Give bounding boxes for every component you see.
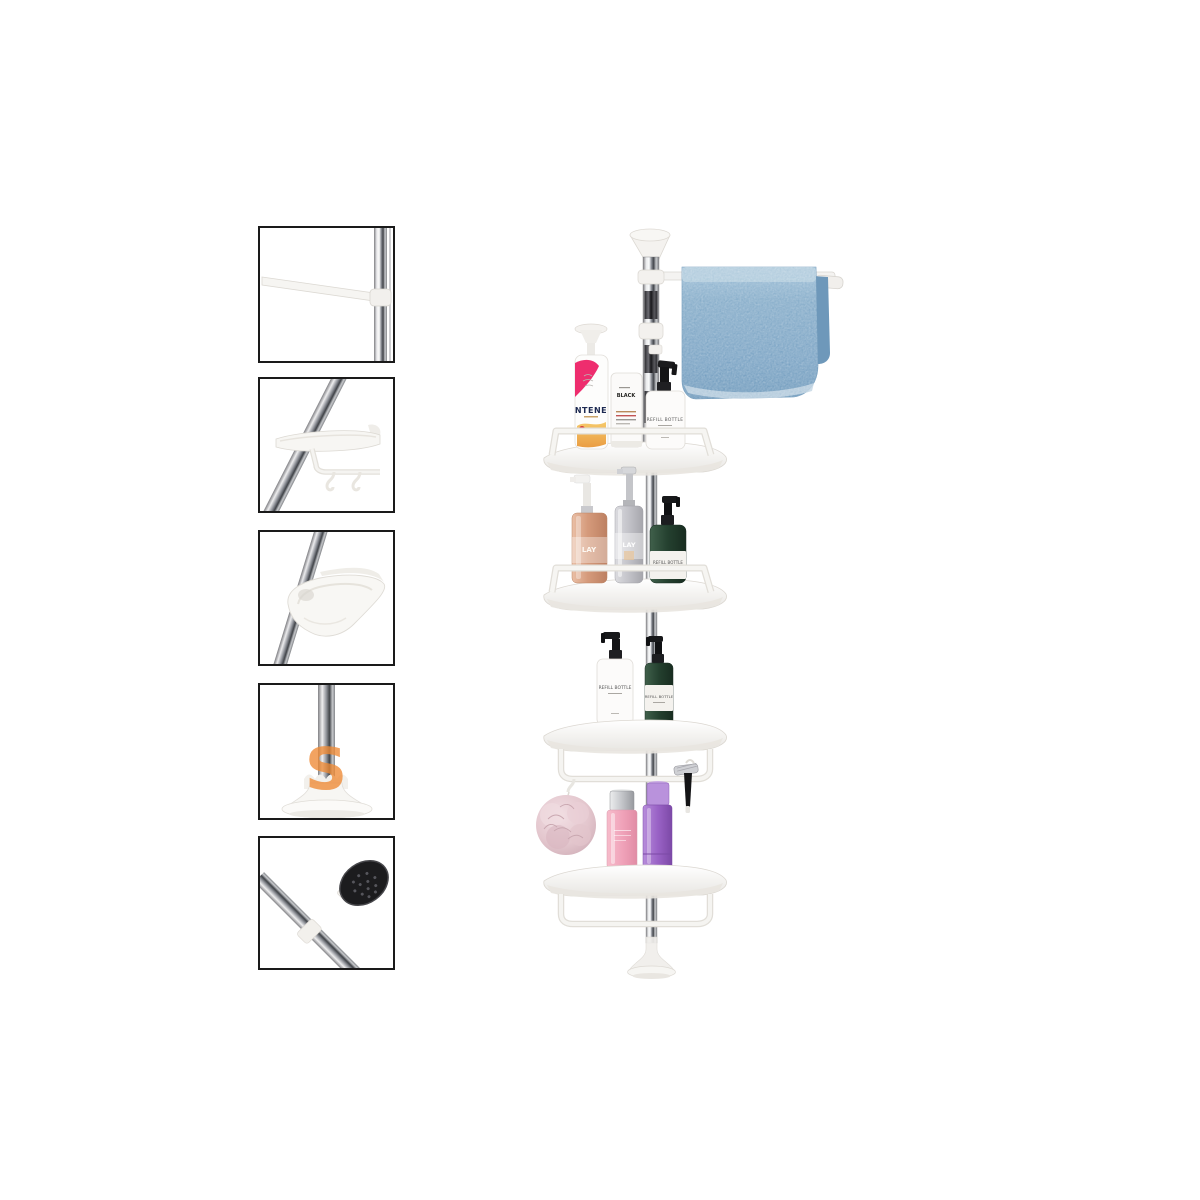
towel-bar-arm [262, 277, 391, 306]
adjuster-collar [639, 323, 663, 339]
towel [682, 267, 830, 399]
loofah [536, 792, 596, 855]
watermark-logo: S [305, 735, 347, 803]
refill-label-3: REFILL BOTTLE [599, 685, 632, 691]
thumbnail-shelf-hooks[interactable] [258, 377, 395, 513]
cosmetic-tube: BLACK [611, 373, 642, 447]
tube-label: BLACK [617, 393, 637, 399]
shelf-3: REFILL BOTTLE REFILL BOTTLE [544, 632, 727, 792]
thumbnail-towel-bar[interactable] [258, 226, 395, 363]
lotion-label-2: LAY [622, 541, 636, 549]
purple-bottle [643, 781, 672, 869]
lotion-label-1: LAY [582, 546, 597, 554]
refill-label-2: REFILL BOTTLE [653, 560, 683, 565]
shampoo-label: NTENE [575, 406, 607, 415]
refill-bottle-2: REFILL BOTTLE [597, 632, 633, 725]
product-image-collage: S [0, 0, 1200, 1200]
razor [674, 760, 699, 813]
shelf-2: LAY LAY [544, 467, 727, 613]
ceiling-pad [331, 852, 393, 915]
thumbnail-pole-end-pad[interactable] [258, 836, 395, 970]
shelf-edge [276, 425, 380, 452]
pink-bottle [607, 789, 637, 868]
refill-label-1: REFILL BOTTLE [647, 417, 684, 423]
refill-label-4: REFILL BOTTLE [645, 694, 674, 699]
hook-rail [312, 449, 380, 490]
thumbnail-corner-shelf[interactable] [258, 530, 395, 666]
thumbnail-suction-base[interactable]: S [258, 683, 395, 820]
suction-base [628, 937, 676, 979]
main-product-image[interactable]: NTENE BLACK [500, 215, 890, 995]
